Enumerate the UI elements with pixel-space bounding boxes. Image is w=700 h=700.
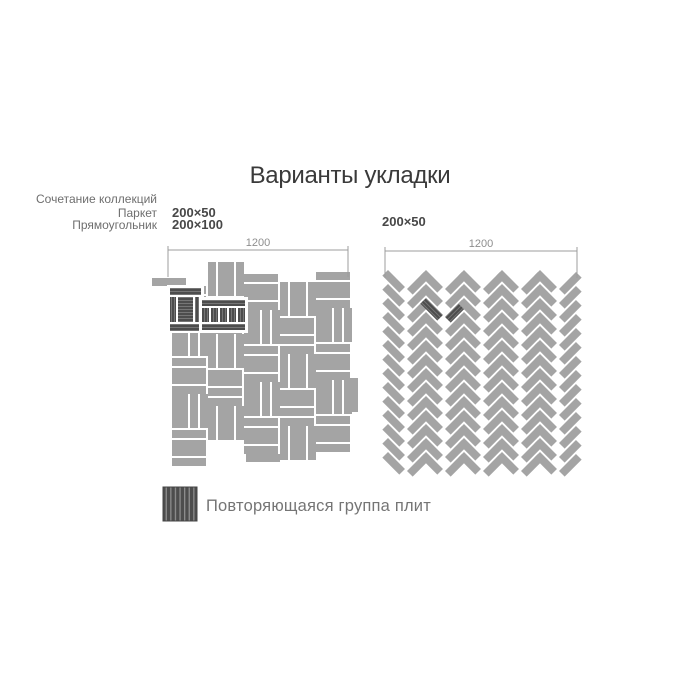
legend-label: Повторяющаяся группа плит [206,495,431,517]
left-tile-sizes: 200×50 200×100 [172,207,223,231]
tile-size-200x100: 200×100 [172,219,223,231]
tile-size-200x50-right: 200×50 [382,216,426,228]
collections-note: Сочетание коллекций [20,193,157,205]
page-title: Варианты укладки [0,163,700,189]
herringbone-pattern [382,270,581,477]
tile-layout-diagram [0,0,700,700]
collection-name-rectangle: Прямоугольник [20,219,157,231]
dimension-label-left: 1200 [236,238,280,249]
dimension-right [385,247,577,278]
repeating-group-swatch [163,487,197,521]
collections-note-block: Сочетание коллекций Паркет Прямоугольник [20,193,157,231]
dimension-label-right: 1200 [459,239,503,250]
repeating-group-highlight-left [167,285,248,333]
